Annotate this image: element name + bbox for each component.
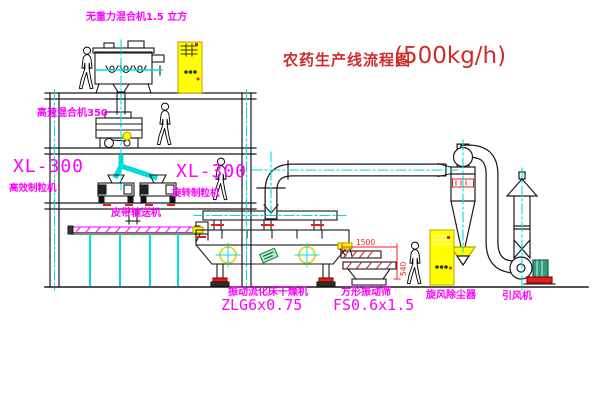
dryer-feed-chute	[193, 222, 208, 242]
diagram-title: 农药生产线流程图	[283, 53, 411, 68]
belt-conveyor-label: 皮带输送机	[111, 209, 161, 219]
control-cabinet-top	[178, 42, 202, 93]
granulator-left-model-label: XL-300	[13, 158, 84, 176]
flow-diagram-canvas: 无重力混合机1.5 立方 高速混合机350 XL-300 高效制粒机 XL-30…	[0, 0, 600, 403]
high-speed-mixer-label: 高速混合机350	[37, 109, 108, 119]
diagram-title-capacity: (500kg/h)	[394, 45, 506, 68]
belt-conveyor-drawing	[68, 226, 200, 285]
cyclone-label: 旋风除尘器	[426, 291, 476, 301]
person-figure-1	[79, 47, 93, 89]
fan-label: 引风机	[502, 292, 532, 302]
building-structure	[45, 93, 588, 287]
dryer-model-label: ZLG6x0.75	[221, 298, 302, 313]
screen-model-label: FS0.6x1.5	[333, 298, 414, 313]
granulator-right-drawing	[140, 175, 176, 203]
induced-fan-drawing	[510, 257, 555, 284]
fluid-bed-dryer-drawing	[196, 211, 352, 286]
person-figure-4	[407, 242, 421, 284]
screen-height-dimension: 540	[400, 262, 408, 276]
gravity-mixer-label: 无重力混合机1.5 立方	[86, 13, 187, 23]
granulator-mid-model-label: XL-300	[176, 163, 247, 181]
exhaust-pipe	[257, 161, 452, 213]
screen-length-dimension: 1500	[356, 239, 375, 247]
granulator-left-name-label: 高效制粒机	[9, 184, 57, 194]
person-figure-2	[157, 103, 171, 145]
granulator-left-drawing	[98, 175, 134, 203]
granulator-mid-name-label: 旋转制粒机	[172, 189, 220, 199]
control-cabinet-right	[430, 230, 454, 285]
